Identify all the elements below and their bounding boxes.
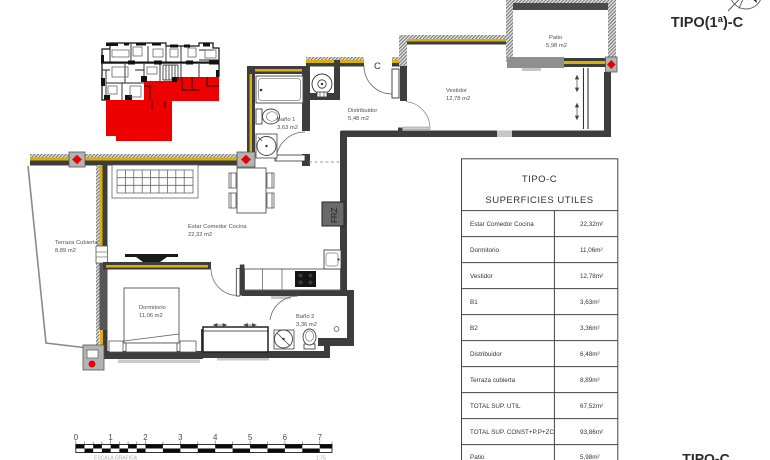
svg-text:Terraza cubierta: Terraza cubierta: [470, 377, 516, 384]
svg-text:FRZ: FRZ: [330, 207, 339, 223]
svg-text:93,86m²: 93,86m²: [580, 429, 603, 436]
svg-text:Vestidor: Vestidor: [446, 88, 467, 94]
svg-text:11,06 m2: 11,06 m2: [139, 313, 163, 319]
svg-text:TIPO(1ª)-C: TIPO(1ª)-C: [671, 15, 744, 31]
svg-text:Distribuidor: Distribuidor: [470, 351, 502, 358]
svg-text:Vestidor: Vestidor: [470, 273, 493, 280]
svg-text:B1: B1: [470, 299, 478, 306]
svg-text:Estar Comedor Cocina: Estar Comedor Cocina: [188, 224, 247, 230]
svg-text:Dormitorio: Dormitorio: [139, 305, 166, 311]
svg-text:3,63 m2: 3,63 m2: [277, 125, 298, 131]
svg-text:Distribuidor: Distribuidor: [348, 108, 377, 114]
svg-text:22,32m²: 22,32m²: [580, 221, 603, 228]
svg-text:SUPERFICIES UTILES: SUPERFICIES UTILES: [485, 195, 593, 206]
svg-text:TOTAL SUP. CONST+P.P+ZC: TOTAL SUP. CONST+P.P+ZC: [470, 429, 554, 436]
svg-text:6,48m²: 6,48m²: [580, 351, 600, 358]
svg-text:Terraza Cubierta: Terraza Cubierta: [55, 240, 99, 246]
svg-text:Dormitorio: Dormitorio: [470, 247, 500, 254]
svg-text:Patio: Patio: [470, 454, 485, 460]
svg-text:3,36m²: 3,36m²: [580, 325, 600, 332]
svg-text:Estar Comedor Cocina: Estar Comedor Cocina: [470, 221, 534, 228]
svg-text:5,48 m2: 5,48 m2: [348, 116, 369, 122]
svg-text:67,52m²: 67,52m²: [580, 403, 603, 410]
svg-text:C: C: [374, 61, 381, 72]
svg-text:Patio: Patio: [549, 35, 562, 41]
svg-text:22,32 m2: 22,32 m2: [188, 232, 212, 238]
svg-text:Baño 2: Baño 2: [296, 314, 314, 320]
svg-text:8,89 m2: 8,89 m2: [55, 248, 76, 254]
svg-text:Baño 1: Baño 1: [277, 117, 295, 123]
svg-text:TIPO-C: TIPO-C: [682, 451, 729, 460]
svg-text:1:75: 1:75: [316, 456, 326, 460]
svg-text:ESCALA GRAFICA: ESCALA GRAFICA: [94, 456, 138, 460]
svg-text:5,98 m2: 5,98 m2: [546, 43, 567, 49]
svg-text:12,78m²: 12,78m²: [580, 273, 603, 280]
svg-text:B2: B2: [470, 325, 478, 332]
svg-text:TIPO-C: TIPO-C: [522, 174, 557, 185]
svg-text:8,89m²: 8,89m²: [580, 377, 600, 384]
svg-text:3,63m²: 3,63m²: [580, 299, 600, 306]
svg-text:TOTAL SUP. UTIL: TOTAL SUP. UTIL: [470, 403, 521, 410]
svg-text:11,06m²: 11,06m²: [580, 247, 603, 254]
svg-text:3,36 m2: 3,36 m2: [296, 322, 317, 328]
svg-text:12,78 m2: 12,78 m2: [446, 96, 470, 102]
svg-text:5,98m²: 5,98m²: [580, 454, 600, 460]
